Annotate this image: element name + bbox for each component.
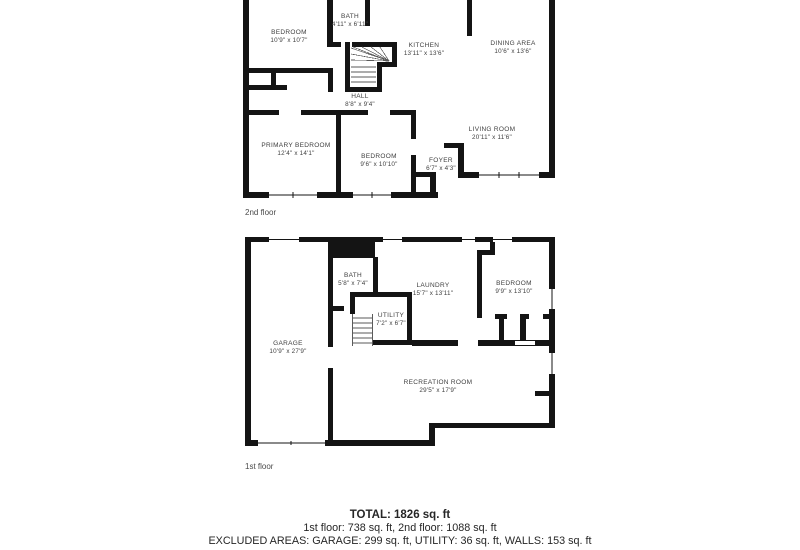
summary-total: TOTAL: 1826 sq. ft [0,509,800,521]
floorplan-page: BEDROOM 10'9" x 10'7" BATH 4'11" x 6'11"… [0,0,800,550]
floor-label-2nd: 2nd floor [245,208,276,217]
floor-plan-drawing [0,0,800,550]
summary-excluded: EXCLUDED AREAS: GARAGE: 299 sq. ft, UTIL… [0,535,800,547]
first-floor-walls [245,237,555,446]
first-floor-stairs-icon [353,314,373,346]
summary-floors: 1st floor: 738 sq. ft, 2nd floor: 1088 s… [0,522,800,534]
second-floor-walls [243,0,555,198]
area-summary: TOTAL: 1826 sq. ft 1st floor: 738 sq. ft… [0,509,800,548]
floor-label-1st: 1st floor [245,462,273,471]
